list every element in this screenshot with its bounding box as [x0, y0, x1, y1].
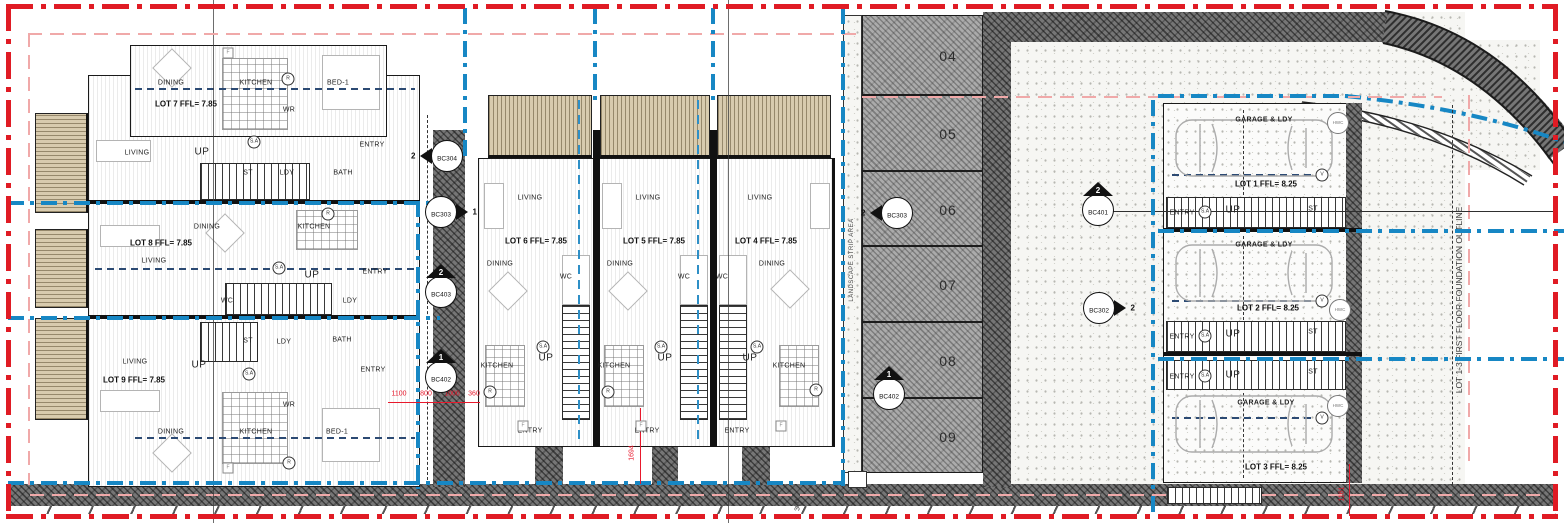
- annotation-layer-item: HWC: [1327, 112, 1349, 134]
- dim-labels-vertical-item: 1161: [1339, 486, 1346, 501]
- section-marker-bc403: 2 BC403: [425, 276, 457, 308]
- annotation-layer-item: F: [223, 48, 234, 59]
- section-marker-bc303-a: 1 BC303: [425, 196, 457, 228]
- dim-line-1161: [1349, 464, 1350, 516]
- room-label-layer-item: ST: [243, 338, 253, 345]
- annotation-layer-item: R: [322, 208, 335, 221]
- room-label-layer-item: WC: [221, 298, 233, 305]
- annotation-layer-item: V: [1316, 169, 1329, 182]
- site-boundary-bottom: [6, 514, 1558, 519]
- section-marker-bc401: 2 BC401: [1082, 194, 1114, 226]
- garage-title-layer-item: GARAGE & LDY: [1235, 117, 1292, 124]
- site-boundary-top: [6, 4, 1558, 9]
- room-label-layer-item: LIVING: [748, 195, 773, 202]
- annotation-layer-item: HWC: [1329, 299, 1351, 321]
- lot-title-layer-item: LOT 1 FFL= 8.25: [1235, 180, 1297, 189]
- room-label-layer-item: KITCHEN: [240, 429, 273, 436]
- marker-number: 2: [411, 152, 415, 161]
- room-label-layer-item: WC: [560, 274, 572, 281]
- lot-title-layer-item: LOT 7 FFL= 7.85: [155, 100, 217, 109]
- marker-triangle-icon: [870, 205, 882, 221]
- garage-title-layer-item: GARAGE & LDY: [1235, 242, 1292, 249]
- section-marker-bc402-a: 1 BC402: [425, 361, 457, 393]
- lot-title-layer-item: LOT 6 FFL= 7.85: [505, 237, 567, 246]
- marker-triangle-icon: [1114, 300, 1126, 316]
- room-label-layer-item: UP: [305, 270, 320, 281]
- marker-number: 2: [439, 268, 443, 277]
- dim-labels-item: 360: [468, 391, 480, 398]
- foundation-outline-dash: [1452, 105, 1453, 485]
- annotation-layer-item: S.A: [537, 341, 550, 354]
- marker-triangle-icon: [456, 204, 468, 220]
- lot-boundary-2-3: [1158, 357, 1564, 361]
- room-label-layer-item: LIVING: [142, 258, 167, 265]
- room-label-layer-item: ST: [1308, 206, 1318, 213]
- marker-label: BC403: [430, 292, 452, 299]
- room-label-layer-item: BED-1: [327, 80, 349, 87]
- lot-boundary-left-east: [416, 201, 420, 489]
- site-boundary-left: [6, 4, 11, 519]
- room-label-layer-item: KITCHEN: [773, 363, 806, 370]
- setback-pink-left: [28, 33, 30, 485]
- room-label-layer-item: UP: [1226, 205, 1241, 216]
- room-label-layer-item: KITCHEN: [240, 80, 273, 87]
- lot-boundary-right-north: [1158, 94, 1348, 98]
- room-label-layer-item: ENTRY: [360, 367, 385, 374]
- section-marker-bc303-b: 2 BC303: [881, 197, 913, 229]
- room-label-layer-item: KITCHEN: [298, 224, 331, 231]
- annotation-layer-item: S.A: [243, 368, 256, 381]
- annotation-layer-item: R: [484, 386, 497, 399]
- room-label-layer-item: WR: [283, 107, 295, 114]
- dim-line-1694: [640, 408, 641, 484]
- room-label-layer-item: BATH: [333, 170, 352, 177]
- room-label-layer-item: WR: [283, 402, 295, 409]
- room-label-layer-item: DINING: [158, 80, 184, 87]
- annotation-layer-item: V: [1316, 295, 1329, 308]
- room-label-layer-item: DINING: [759, 261, 785, 268]
- room-label-layer-item: DINING: [194, 224, 220, 231]
- room-label-layer-item: UP: [1226, 329, 1241, 340]
- annotation-layer-item: S.A: [1199, 206, 1212, 219]
- lot-title-layer-item: LOT 4 FFL= 7.85: [735, 237, 797, 246]
- setback-pink-top: [28, 33, 862, 35]
- room-label-layer-item: ST: [1308, 329, 1318, 336]
- room-label-layer-item: UP: [195, 147, 210, 158]
- section-marker-bc304: 2 BC304: [431, 140, 463, 172]
- room-label-layer-item: KITCHEN: [598, 363, 631, 370]
- lot-title-layer-item: LOT 2 FFL= 8.25: [1237, 304, 1299, 313]
- lot-title-layer-item: LOT 3 FFL= 8.25: [1245, 463, 1307, 472]
- site-floor-plan: LANDSCAPE STRIP AREA 040506070809: [0, 0, 1564, 523]
- room-label-layer-item: WC: [678, 274, 690, 281]
- room-label-layer-item: UP: [658, 353, 673, 364]
- marker-number: 2: [1096, 186, 1100, 195]
- room-label-layer-item: BATH: [332, 337, 351, 344]
- marker-label: BC304: [436, 156, 458, 163]
- annotation-layer-item: R: [283, 457, 296, 470]
- lot-title-layer-item: LOT 5 FFL= 7.85: [623, 237, 685, 246]
- room-label-layer-item: ENTRY: [1169, 374, 1194, 381]
- lot-boundary-5-4: [697, 100, 699, 445]
- marker-number: 1: [439, 353, 443, 362]
- lot-boundary-6-5: [578, 100, 580, 445]
- room-label-layer-item: LIVING: [123, 359, 148, 366]
- room-label-layer-item: UP: [743, 353, 758, 364]
- annotation-layer-item: R: [602, 386, 615, 399]
- marker-label: BC303: [886, 213, 908, 220]
- marker-label: BC401: [1087, 210, 1109, 217]
- room-label-layer-item: ENTRY: [359, 142, 384, 149]
- room-label-layer-item: ST: [1308, 369, 1318, 376]
- lot-title-layer-item: LOT 8 FFL= 7.85: [130, 239, 192, 248]
- room-label-layer-item: DINING: [487, 261, 513, 268]
- grid-line-b: [728, 0, 729, 523]
- room-label-layer-item: ST: [243, 170, 253, 177]
- marker-number: 1: [887, 370, 891, 379]
- annotation-layer-item: S.A: [1199, 370, 1212, 383]
- annotation-layer-item: R: [810, 384, 823, 397]
- dim-labels-item: 1100: [391, 391, 406, 398]
- room-label-layer-item: ENTRY: [1169, 210, 1194, 217]
- dim-line-row: [388, 402, 480, 403]
- annotation-layer-item: R: [282, 73, 295, 86]
- marker-label: BC402: [878, 394, 900, 401]
- room-label-layer-item: WC: [716, 274, 728, 281]
- annotation-layer-item: HWC: [1327, 395, 1349, 417]
- dim-box-771: [848, 471, 867, 488]
- marker-label: BC402: [430, 377, 452, 384]
- section-marker-bc402-b: 1 BC402: [873, 378, 905, 410]
- marker-label: BC303: [430, 212, 452, 219]
- room-label-layer-item: LIVING: [125, 150, 150, 157]
- annotation-layer-item: F: [776, 421, 787, 432]
- lot-boundary-south: [8, 481, 843, 485]
- room-label-layer-item: UP: [539, 353, 554, 364]
- section-marker-bc302: 2 BC302: [1083, 292, 1115, 324]
- lot-title-layer-item: LOT 9 FFL= 7.85: [103, 376, 165, 385]
- lot-boundary-mid-c: [711, 8, 715, 100]
- room-label-layer-item: ENTRY: [724, 428, 749, 435]
- lot-boundary-7-8: [8, 201, 433, 205]
- site-boundary-right: [1553, 4, 1558, 519]
- lot-boundary-mid-b: [593, 8, 597, 100]
- dim-labels-item: 800: [420, 391, 432, 398]
- foundation-outline-note: LOT 1-3 FIRST FLOOR FOUNDATION OUTLINE: [1454, 207, 1464, 394]
- room-label-layer-item: ENTRY: [362, 269, 387, 276]
- room-label-layer-item: LIVING: [636, 195, 661, 202]
- marker-number: 2: [861, 209, 865, 218]
- annotation-layer-item: S.A: [655, 341, 668, 354]
- marker-number: 2: [1131, 304, 1135, 313]
- annotation-layer-item: S.A: [248, 136, 261, 149]
- dim-labels-vertical-item: 1694: [629, 445, 636, 461]
- annotation-layer-item: F: [518, 421, 529, 432]
- room-label-layer-item: LDY: [277, 339, 292, 346]
- marker-number: 1: [473, 208, 477, 217]
- lot-boundary-strip-west: [841, 8, 845, 490]
- annotation-layer-item: S.A: [751, 341, 764, 354]
- room-label-layer-item: KITCHEN: [481, 363, 514, 370]
- foundation-outline-pink: [1468, 95, 1470, 465]
- annotation-layer-item: S.A: [273, 262, 286, 275]
- annotation-layer-item: S.A: [1199, 330, 1212, 343]
- room-label-layer-item: DINING: [158, 429, 184, 436]
- lot-boundary-right-west: [1151, 100, 1155, 512]
- lot-boundary-8-9: [8, 316, 440, 320]
- garage-title-layer-item: GARAGE & LDY: [1237, 400, 1294, 407]
- room-label-layer-item: LDY: [280, 170, 295, 177]
- room-label-layer-item: UP: [1226, 370, 1241, 381]
- room-label-layer-item: DINING: [607, 261, 633, 268]
- room-label-layer-item: LIVING: [518, 195, 543, 202]
- room-label-layer-item: LDY: [343, 298, 358, 305]
- marker-triangle-icon: [420, 148, 432, 164]
- grid-line-a: [213, 0, 214, 523]
- room-label-layer-item: ENTRY: [1169, 334, 1194, 341]
- room-label-layer-item: BED-1: [326, 429, 348, 436]
- dim-labels-vertical-item: 300: [795, 499, 802, 511]
- lot-boundary-1-2: [1158, 229, 1564, 233]
- room-label-layer-item: UP: [192, 360, 207, 371]
- annotation-layer-item: F: [223, 463, 234, 474]
- marker-label: BC302: [1088, 308, 1110, 315]
- setback-pink-right: [862, 96, 1442, 98]
- annotation-layer-item: F: [636, 421, 647, 432]
- lot-boundary-mid-a: [463, 8, 467, 158]
- annotation-layer-item: V: [1316, 412, 1329, 425]
